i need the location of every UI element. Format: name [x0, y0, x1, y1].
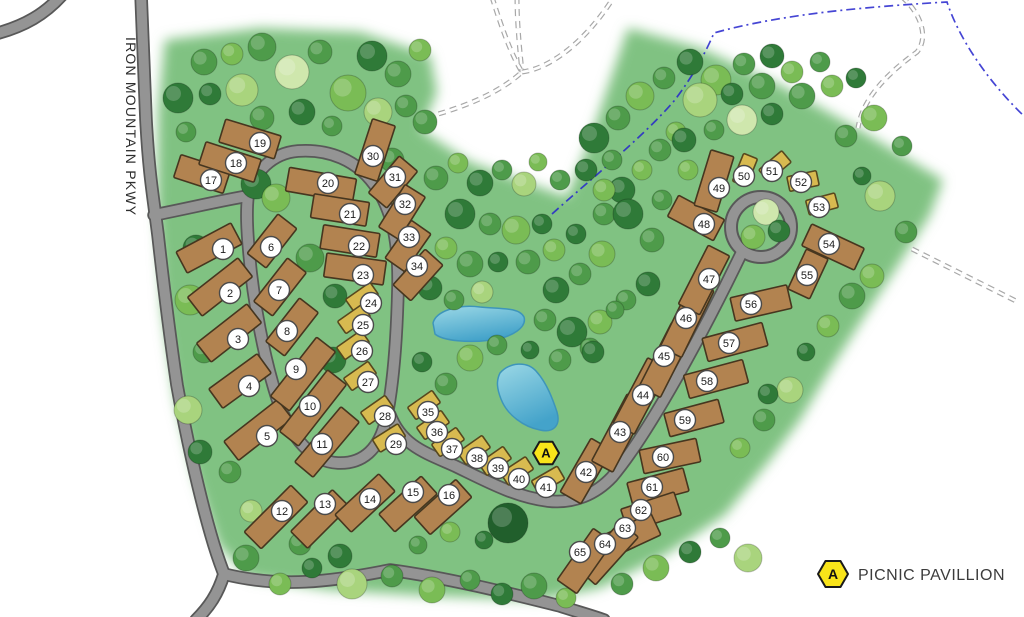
svg-text:2: 2 [227, 288, 233, 300]
tree [435, 237, 457, 259]
svg-text:59: 59 [679, 415, 691, 427]
svg-text:16: 16 [443, 490, 455, 502]
tree [839, 283, 865, 309]
site-26-label[interactable]: 26 [352, 341, 373, 362]
tree [409, 536, 427, 554]
site-52-label[interactable]: 52 [791, 172, 812, 193]
tree [649, 139, 671, 161]
picnic-pavilion-marker[interactable]: A [533, 442, 559, 465]
svg-text:14: 14 [364, 494, 376, 506]
tree [163, 83, 193, 113]
tree [444, 290, 464, 310]
svg-text:56: 56 [745, 299, 757, 311]
tree [323, 284, 347, 308]
site-29-label[interactable]: 29 [386, 434, 407, 455]
svg-text:27: 27 [362, 377, 374, 389]
tree [226, 74, 258, 106]
site-22-label[interactable]: 22 [349, 236, 370, 257]
site-15-label[interactable]: 15 [403, 482, 424, 503]
tree [424, 166, 448, 190]
tree [550, 170, 570, 190]
site-33-label[interactable]: 33 [399, 227, 420, 248]
tree [721, 83, 743, 105]
tree [892, 136, 912, 156]
tree [549, 349, 571, 371]
svg-text:36: 36 [431, 427, 443, 439]
tree [491, 583, 513, 605]
tree [529, 153, 547, 171]
tree [672, 128, 696, 152]
tree [613, 199, 643, 229]
tree [678, 160, 698, 180]
site-14-label[interactable]: 14 [360, 489, 381, 510]
tree [471, 281, 493, 303]
site-28-label[interactable]: 28 [375, 406, 396, 427]
tree [221, 43, 243, 65]
svg-text:11: 11 [316, 439, 327, 451]
tree [753, 409, 775, 431]
road-label-iron-mountain-pkwy: IRON MOUNTAIN PKWY [123, 37, 139, 216]
site-44-label[interactable]: 44 [633, 385, 654, 406]
legend-symbol: A [828, 566, 838, 582]
site-43-label[interactable]: 43 [610, 422, 631, 443]
svg-text:10: 10 [304, 401, 316, 413]
svg-text:53: 53 [813, 202, 825, 214]
svg-text:26: 26 [356, 346, 368, 358]
tree [521, 341, 539, 359]
tree [419, 577, 445, 603]
site-23-label[interactable]: 23 [353, 265, 374, 286]
site-2-label[interactable]: 2 [220, 283, 241, 304]
tree [409, 39, 431, 61]
tree [761, 103, 783, 125]
svg-text:45: 45 [658, 351, 670, 363]
site-16-label[interactable]: 16 [439, 485, 460, 506]
tree [543, 239, 565, 261]
tree [653, 67, 675, 89]
site-5-label[interactable]: 5 [257, 426, 278, 447]
tree [789, 83, 815, 109]
tree [479, 213, 501, 235]
svg-text:38: 38 [471, 453, 483, 465]
svg-text:44: 44 [637, 390, 649, 402]
svg-text:34: 34 [411, 261, 423, 273]
tree [385, 61, 411, 87]
tree [602, 150, 622, 170]
tree [516, 250, 540, 274]
tree [626, 82, 654, 110]
svg-text:61: 61 [646, 482, 658, 494]
site-12-label[interactable]: 12 [272, 501, 293, 522]
svg-text:43: 43 [614, 427, 626, 439]
tree [330, 75, 366, 111]
tree [328, 544, 352, 568]
tree [502, 216, 530, 244]
site-38-label[interactable]: 38 [467, 448, 488, 469]
svg-text:31: 31 [389, 172, 401, 184]
site-10-label[interactable]: 10 [300, 396, 321, 417]
svg-text:42: 42 [580, 467, 592, 479]
tree [683, 83, 717, 117]
svg-text:41: 41 [540, 482, 552, 494]
site-53-label[interactable]: 53 [809, 197, 830, 218]
tree [487, 335, 507, 355]
site-49-label[interactable]: 49 [709, 178, 730, 199]
svg-text:A: A [541, 446, 551, 461]
svg-text:32: 32 [399, 199, 411, 211]
site-64-label[interactable]: 64 [595, 534, 616, 555]
site-21-label[interactable]: 21 [340, 204, 361, 225]
tree [643, 555, 669, 581]
svg-text:24: 24 [365, 298, 377, 310]
svg-text:40: 40 [513, 474, 525, 486]
svg-text:13: 13 [319, 499, 331, 511]
tree [475, 531, 493, 549]
site-35-label[interactable]: 35 [418, 402, 439, 423]
tree [488, 503, 528, 543]
site-9-label[interactable]: 9 [286, 359, 307, 380]
tree [710, 528, 730, 548]
site-54-label[interactable]: 54 [819, 234, 840, 255]
site-42-label[interactable]: 42 [576, 462, 597, 483]
svg-text:30: 30 [367, 151, 379, 163]
legend: A PICNIC PAVILLION [818, 561, 1005, 587]
tree [593, 179, 615, 201]
svg-text:52: 52 [795, 177, 807, 189]
svg-text:15: 15 [407, 487, 419, 499]
tree [727, 105, 757, 135]
tree [797, 343, 815, 361]
svg-text:18: 18 [230, 158, 242, 170]
tree [895, 221, 917, 243]
tree [777, 377, 803, 403]
site-20-label[interactable]: 20 [318, 173, 339, 194]
svg-text:47: 47 [703, 274, 715, 286]
tree [640, 228, 664, 252]
tree [575, 159, 597, 181]
svg-text:33: 33 [403, 232, 415, 244]
svg-text:6: 6 [268, 242, 274, 254]
tree [579, 123, 609, 153]
site-51-label[interactable]: 51 [762, 161, 783, 182]
tree [176, 122, 196, 142]
tree [381, 565, 403, 587]
site-50-label[interactable]: 50 [734, 166, 755, 187]
svg-text:8: 8 [284, 326, 290, 338]
svg-text:12: 12 [276, 506, 288, 518]
tree [219, 461, 241, 483]
pavilion-marker-layer: A [533, 442, 559, 465]
tree [821, 75, 843, 97]
site-48-label[interactable]: 48 [694, 214, 715, 235]
site-36-label[interactable]: 36 [427, 422, 448, 443]
tree [589, 241, 615, 267]
tree [679, 541, 701, 563]
site-63-label[interactable]: 63 [615, 518, 636, 539]
svg-text:63: 63 [619, 523, 631, 535]
tree [457, 251, 483, 277]
tree [606, 301, 624, 319]
tree [512, 172, 536, 196]
site-19-label[interactable]: 19 [250, 133, 271, 154]
site-57-label[interactable]: 57 [719, 333, 740, 354]
site-61-label[interactable]: 61 [642, 477, 663, 498]
svg-text:51: 51 [766, 166, 778, 178]
tree [521, 573, 547, 599]
svg-text:9: 9 [293, 364, 299, 376]
tree [632, 160, 652, 180]
site-7-label[interactable]: 7 [269, 280, 290, 301]
svg-text:29: 29 [390, 439, 402, 451]
tree [861, 105, 887, 131]
site-37-label[interactable]: 37 [442, 439, 463, 460]
tree [810, 52, 830, 72]
tree [413, 110, 437, 134]
tree [337, 569, 367, 599]
site-41-label[interactable]: 41 [536, 477, 557, 498]
site-3-label[interactable]: 3 [228, 329, 249, 350]
site-65-label[interactable]: 65 [570, 542, 591, 563]
svg-text:5: 5 [264, 431, 270, 443]
tree [250, 106, 274, 130]
tree [543, 277, 569, 303]
tree [302, 558, 322, 578]
tree [395, 95, 417, 117]
site-13-label[interactable]: 13 [315, 494, 336, 515]
svg-text:60: 60 [657, 452, 669, 464]
svg-text:49: 49 [713, 183, 725, 195]
site-58-label[interactable]: 58 [697, 371, 718, 392]
tree [233, 545, 259, 571]
site-47-label[interactable]: 47 [699, 269, 720, 290]
tree [865, 181, 895, 211]
tree [308, 40, 332, 64]
site-11-label[interactable]: 11 [312, 434, 333, 455]
site-59-label[interactable]: 59 [675, 410, 696, 431]
tree [191, 49, 217, 75]
site-4-label[interactable]: 4 [239, 376, 260, 397]
tree [768, 220, 790, 242]
tree [174, 396, 202, 424]
tree [248, 33, 276, 61]
site-45-label[interactable]: 45 [654, 346, 675, 367]
site-24-label[interactable]: 24 [361, 293, 382, 314]
site-60-label[interactable]: 60 [653, 447, 674, 468]
tree [445, 199, 475, 229]
site-31-label[interactable]: 31 [385, 167, 406, 188]
svg-text:54: 54 [823, 239, 835, 251]
tree [817, 315, 839, 337]
tree [636, 272, 660, 296]
tree [289, 99, 315, 125]
tree [492, 160, 512, 180]
svg-text:20: 20 [322, 178, 334, 190]
tree [582, 341, 604, 363]
tree [412, 352, 432, 372]
svg-text:48: 48 [698, 219, 710, 231]
tree [704, 120, 724, 140]
tree [467, 170, 493, 196]
site-27-label[interactable]: 27 [358, 372, 379, 393]
svg-text:22: 22 [353, 241, 365, 253]
tree [593, 203, 615, 225]
site-46-label[interactable]: 46 [676, 308, 697, 329]
tree [275, 55, 309, 89]
tree [569, 263, 591, 285]
svg-text:50: 50 [738, 171, 750, 183]
tree [488, 252, 508, 272]
svg-text:1: 1 [220, 244, 226, 256]
site-17-label[interactable]: 17 [201, 170, 222, 191]
campground-site-map: 1234567891011121314151617181920212223242… [0, 0, 1024, 617]
tree [846, 68, 866, 88]
tree [440, 522, 460, 542]
tree [606, 106, 630, 130]
tree [677, 49, 703, 75]
tree [532, 214, 552, 234]
svg-text:28: 28 [379, 411, 391, 423]
svg-text:4: 4 [246, 381, 252, 393]
site-map-svg: 1234567891011121314151617181920212223242… [0, 0, 1024, 617]
svg-text:35: 35 [422, 407, 434, 419]
tree [322, 116, 342, 136]
site-32-label[interactable]: 32 [395, 194, 416, 215]
tree [435, 373, 457, 395]
site-39-label[interactable]: 39 [488, 458, 509, 479]
tree [741, 225, 765, 249]
site-40-label[interactable]: 40 [509, 469, 530, 490]
tree [357, 41, 387, 71]
tree [758, 384, 778, 404]
tree [199, 83, 221, 105]
svg-text:55: 55 [801, 270, 813, 282]
tree [448, 153, 468, 173]
site-62-label[interactable]: 62 [631, 500, 652, 521]
site-6-label[interactable]: 6 [261, 237, 282, 258]
tree [860, 264, 884, 288]
tree [269, 573, 291, 595]
tree [760, 44, 784, 68]
site-18-label[interactable]: 18 [226, 153, 247, 174]
tree [853, 167, 871, 185]
site-8-label[interactable]: 8 [277, 321, 298, 342]
tree [652, 190, 672, 210]
svg-text:62: 62 [635, 505, 647, 517]
svg-text:64: 64 [599, 539, 611, 551]
site-30-label[interactable]: 30 [363, 146, 384, 167]
svg-text:17: 17 [205, 175, 217, 187]
tree [188, 440, 212, 464]
tree [749, 73, 775, 99]
svg-text:57: 57 [723, 338, 735, 350]
site-1-label[interactable]: 1 [213, 239, 234, 260]
svg-text:25: 25 [357, 320, 369, 332]
tree [781, 61, 803, 83]
legend-label: PICNIC PAVILLION [858, 567, 1005, 584]
site-55-label[interactable]: 55 [797, 265, 818, 286]
svg-text:39: 39 [492, 463, 504, 475]
tree [457, 345, 483, 371]
svg-text:58: 58 [701, 376, 713, 388]
svg-text:37: 37 [446, 444, 458, 456]
tree [611, 573, 633, 595]
svg-text:65: 65 [574, 547, 586, 559]
tree [733, 53, 755, 75]
site-56-label[interactable]: 56 [741, 294, 762, 315]
tree [460, 570, 480, 590]
site-34-label[interactable]: 34 [407, 256, 428, 277]
tree [566, 224, 586, 244]
svg-text:7: 7 [276, 285, 282, 297]
svg-text:21: 21 [344, 209, 356, 221]
tree [734, 544, 762, 572]
tree [534, 309, 556, 331]
tree [835, 125, 857, 147]
tree [730, 438, 750, 458]
svg-text:46: 46 [680, 313, 692, 325]
site-25-label[interactable]: 25 [353, 315, 374, 336]
svg-text:23: 23 [357, 270, 369, 282]
svg-text:3: 3 [235, 334, 241, 346]
svg-text:19: 19 [254, 138, 266, 150]
